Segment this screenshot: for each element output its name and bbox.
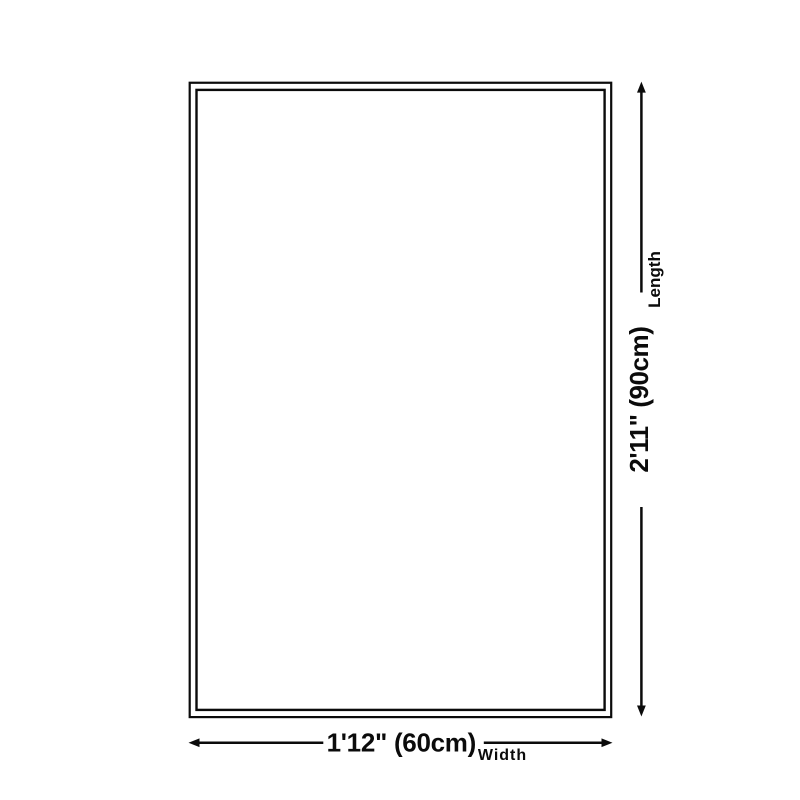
svg-text:Width: Width: [478, 747, 527, 764]
svg-text:Length: Length: [645, 251, 664, 308]
svg-text:1'12" (60cm): 1'12" (60cm): [327, 728, 476, 758]
svg-text:2'11" (90cm): 2'11" (90cm): [624, 327, 654, 473]
